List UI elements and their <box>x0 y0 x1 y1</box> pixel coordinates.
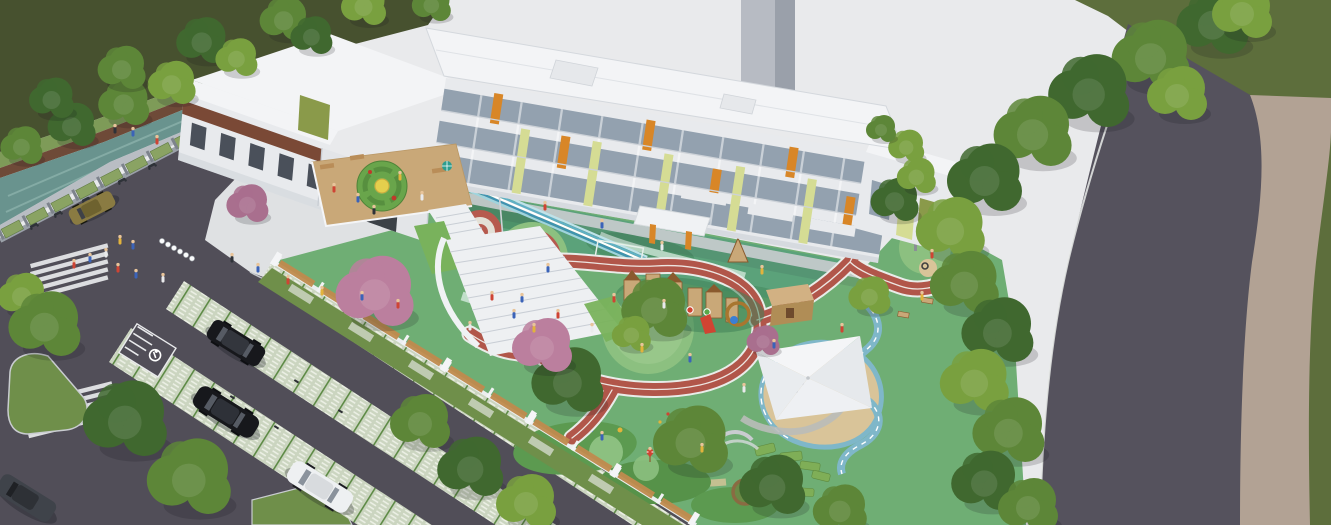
rendering-image: Aerial 3D architectural rendering of a k… <box>0 0 1331 525</box>
tube-figure <box>730 316 738 324</box>
maze-canopy <box>375 179 389 193</box>
mound-top <box>633 455 659 481</box>
hedge-maze <box>357 161 407 211</box>
hut-door <box>786 308 794 318</box>
play-dot <box>618 428 623 433</box>
service-tower <box>741 0 795 96</box>
